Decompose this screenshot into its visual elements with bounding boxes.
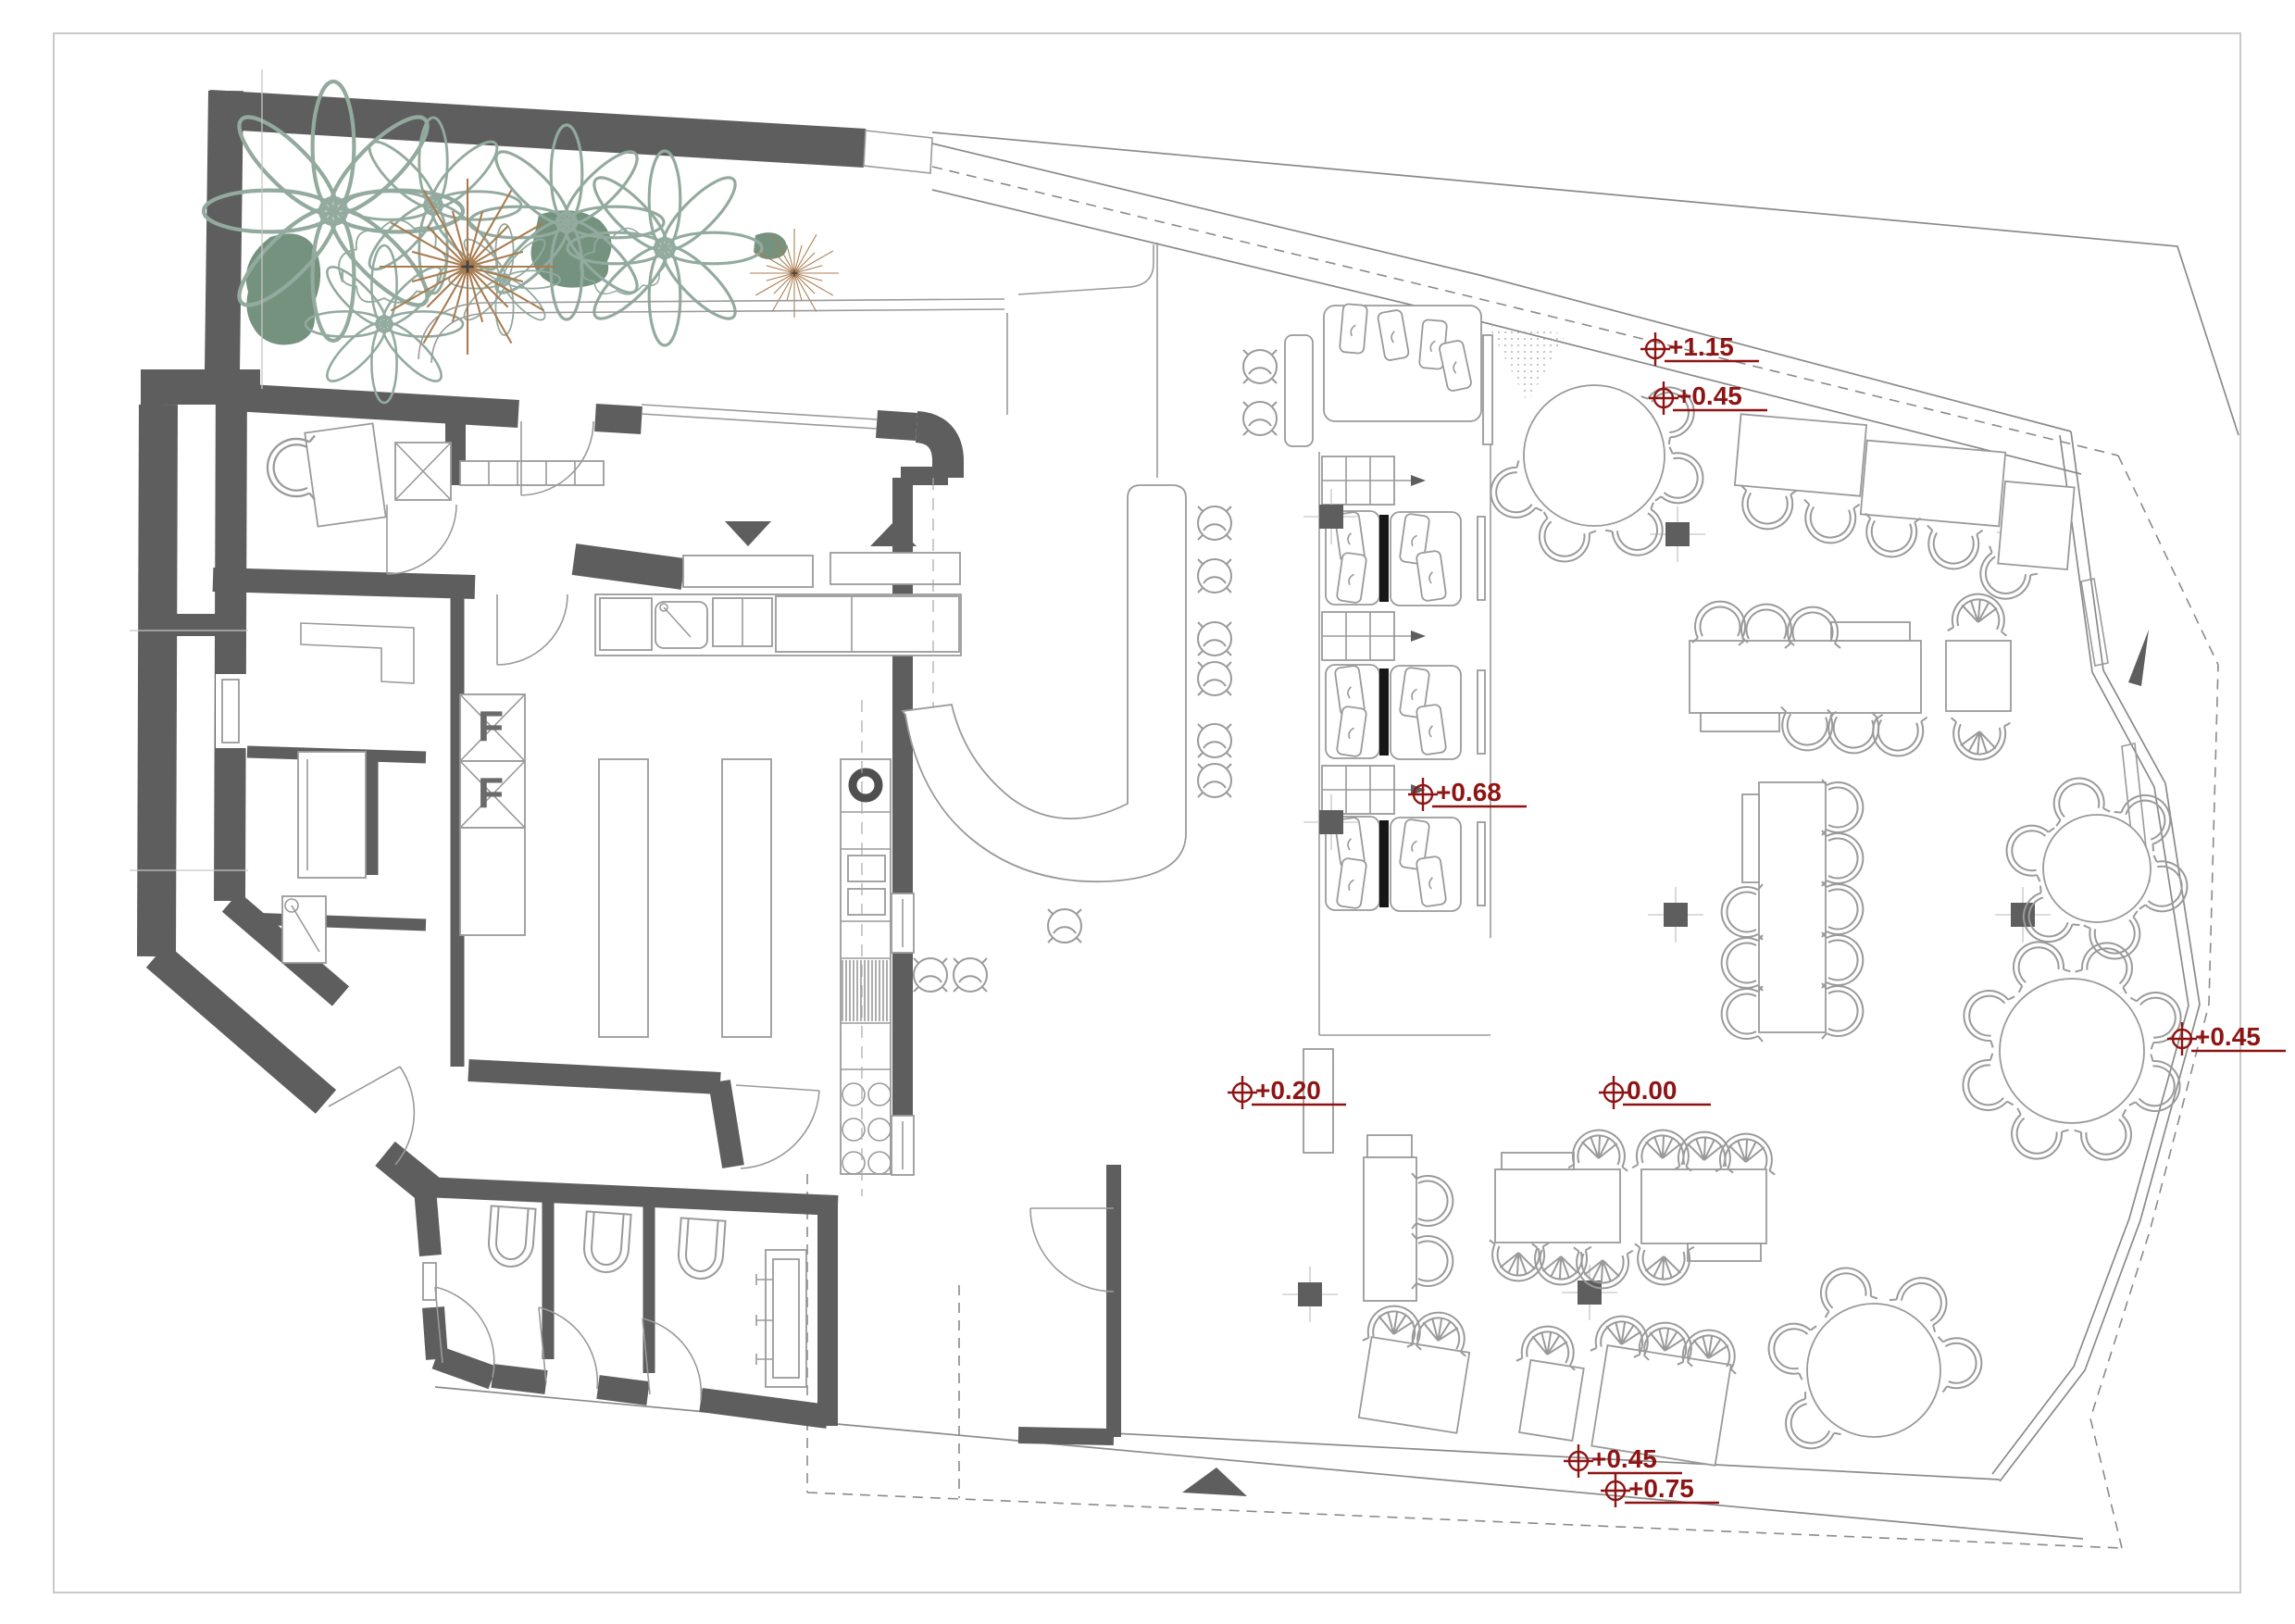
bottom-tables: [1359, 1129, 1984, 1466]
entrance-arrow-icon: [1182, 1468, 1247, 1496]
column: [1282, 1267, 1338, 1322]
bench: [1742, 794, 1759, 882]
serving-wall: [574, 559, 683, 574]
fridge-freezer: F F: [460, 694, 525, 935]
grill: [842, 960, 887, 1021]
mop-sink: [282, 896, 326, 963]
bar-stool: [1198, 764, 1231, 797]
table-for-two: [1946, 592, 2011, 762]
bench: [1502, 1153, 1574, 1169]
office-door: [387, 505, 456, 574]
level-value: 0.00: [1627, 1076, 1678, 1105]
counter: [298, 752, 366, 878]
radiator: [222, 680, 239, 743]
office: [268, 423, 604, 574]
level-marker-street-lower: +0.75: [1601, 1474, 1719, 1507]
round-table-bottom: [1763, 1260, 1984, 1461]
garden-west-wall: [222, 91, 226, 372]
wc-block: [418, 1187, 838, 1426]
level-marker-terrace-upper: +0.45: [1649, 381, 1767, 415]
stairs: [1322, 766, 1426, 814]
toilet: [677, 1218, 725, 1280]
stairs: [1322, 456, 1426, 505]
side-table: [1483, 335, 1492, 444]
round-table-10: [1954, 933, 2189, 1168]
desk: [305, 423, 385, 526]
bench: [1688, 1243, 1761, 1261]
kitchen-back-door: [736, 1085, 819, 1168]
stool: [1243, 402, 1277, 435]
level-value: +0.68: [1436, 778, 1502, 806]
counter: [301, 623, 414, 683]
long-table: [1690, 602, 1927, 758]
serving-hatches: [683, 521, 960, 587]
bench: [1701, 713, 1779, 731]
shaft: [395, 443, 451, 500]
north-pointer-icon: [2128, 630, 2149, 686]
level-marker-dining-hall: 0.00: [1599, 1076, 1711, 1109]
column: [1562, 1265, 1617, 1320]
level-value: +1.15: [1668, 332, 1734, 361]
east-wall-inner: [1992, 435, 2189, 1474]
column: [1648, 887, 1703, 943]
bar-stool: [1048, 909, 1081, 943]
high-table: [1285, 335, 1313, 446]
bar-stool: [1198, 559, 1231, 593]
freezer-label: F: [478, 768, 504, 817]
sink: [655, 602, 707, 648]
booth-divider: [1379, 668, 1389, 756]
booth: [1326, 665, 1485, 759]
kitchen-door: [497, 594, 568, 665]
fridge-label: F: [478, 702, 504, 750]
north-window: [642, 405, 877, 429]
toilet: [487, 1206, 535, 1268]
toilet: [582, 1211, 630, 1273]
bench: [1831, 622, 1910, 641]
stairs: [1322, 612, 1426, 660]
garden-path-edge: [418, 299, 1004, 359]
window-tables: [1735, 414, 2075, 609]
bar-counter: [903, 485, 1186, 881]
floor-plan-drawing: F F: [0, 0, 2295, 1624]
plant-icon: [449, 224, 560, 335]
garden-gate: [864, 131, 932, 173]
shelving: [460, 461, 604, 485]
bar-stool: [1198, 622, 1231, 656]
booth-divider: [1379, 515, 1389, 602]
west-wall-outer: [156, 405, 158, 956]
garden-north-wall: [209, 109, 865, 148]
level-marker-street-upper: +1.15: [1640, 332, 1759, 366]
level-value: +0.75: [1628, 1474, 1694, 1503]
kitchen-island: [722, 759, 771, 1037]
cook-line: [841, 759, 891, 1174]
east-wall-outer: [2000, 431, 2200, 1481]
level-value: +0.45: [1677, 381, 1742, 410]
radiator: [423, 1263, 436, 1300]
north-counter: [595, 594, 961, 656]
level-value: +0.45: [2195, 1022, 2261, 1051]
level-marker-booth-platform: +0.68: [1408, 778, 1527, 811]
level-markers: +1.15 +0.45 +0.68 +0.20 0.00 +0.45 +0.45…: [1228, 332, 2286, 1507]
boundary-bottom: [807, 1493, 2122, 1548]
street-centerline: [932, 167, 2118, 456]
plant-icon: [306, 245, 463, 403]
entrance-mat: [1489, 326, 1566, 403]
counter-stool: [954, 958, 987, 992]
bar-stool: [1198, 724, 1231, 757]
level-value: +0.45: [1591, 1444, 1657, 1473]
bar-stool: [1198, 506, 1231, 540]
level-value: +0.20: [1255, 1076, 1321, 1105]
plant-icon: [469, 125, 664, 319]
wash-basin: [756, 1250, 806, 1387]
booth-divider: [1379, 820, 1389, 907]
stool: [1243, 350, 1277, 383]
booth: [1326, 511, 1485, 606]
corridor-door: [1030, 1208, 1114, 1292]
bar-stool: [1198, 662, 1231, 695]
floor-plan-sheet: F F: [0, 0, 2295, 1624]
round-table-6: [2001, 772, 2194, 966]
kitchen-island: [599, 759, 648, 1037]
level-marker-terrace-right: +0.45: [2167, 1022, 2286, 1056]
counter-stool: [914, 958, 947, 992]
hatch-in-icon: [725, 521, 771, 546]
communal-table: [1722, 780, 1864, 1042]
lounge: [1243, 304, 1492, 446]
booth: [1326, 817, 1485, 911]
